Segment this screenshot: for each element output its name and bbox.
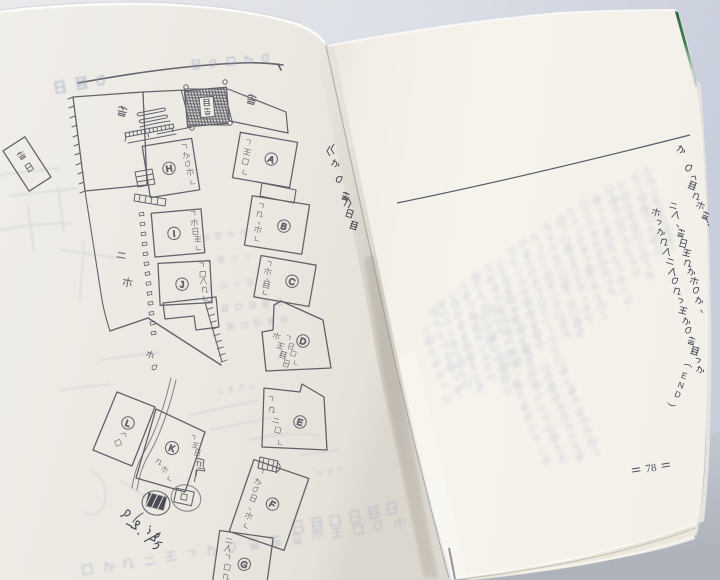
svg-text:J: J (180, 279, 185, 289)
